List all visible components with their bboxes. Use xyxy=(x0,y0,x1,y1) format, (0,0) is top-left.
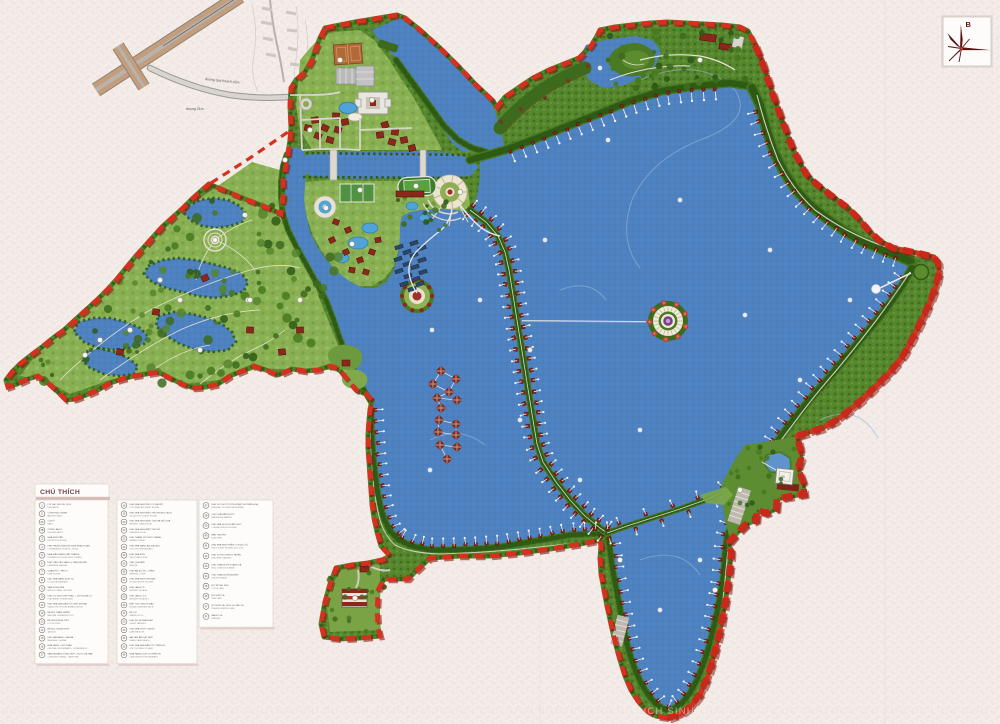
svg-text:CỔNG LÀNG 1: CỔNG LÀNG 1 xyxy=(48,528,64,531)
svg-text:GATE: GATE xyxy=(48,523,54,526)
svg-text:BỂ SỤC NGOÀI TRỜI: BỂ SỤC NGOÀI TRỜI xyxy=(48,628,70,631)
svg-text:LAKE HOUSE: LAKE HOUSE xyxy=(48,572,61,575)
svg-text:SÂN BÓNG MINI: SÂN BÓNG MINI xyxy=(48,586,65,589)
svg-text:KHU NHÀ SÀN DÂN TỘC TRÊN HỒ: KHU NHÀ SÀN DÂN TỘC TRÊN HỒ xyxy=(130,644,166,647)
svg-text:B: B xyxy=(966,20,972,29)
svg-text:POULTRY RESTAURANT: POULTRY RESTAURANT xyxy=(130,548,154,551)
svg-text:KHU NHÀ NGHỈ TRÊN CỒN (45 LÔ): KHU NHÀ NGHỈ TRÊN CỒN (45 LÔ) xyxy=(212,543,248,546)
svg-text:LOCAL RESTAURANT: LOCAL RESTAURANT xyxy=(48,581,69,584)
svg-text:WATERSIDE MARKET: WATERSIDE MARKET xyxy=(212,516,233,519)
svg-text:KHU DU LICH SINH THAI HO NUI C: KHU DU LICH SINH THAI HO NUI COC THAI NG… xyxy=(2,706,1000,717)
svg-text:BUDDHA + FLOWER SHOW AREA: BUDDHA + FLOWER SHOW AREA xyxy=(212,506,245,509)
svg-text:NHÀ ĐIỀU HÀNH (XÂY THANG): NHÀ ĐIỀU HÀNH (XÂY THANG) xyxy=(48,553,80,556)
svg-text:WADING POOL: WADING POOL xyxy=(130,614,145,617)
svg-text:KHU VƯỜN CHIM TỰ NHIÊN: KHU VƯỜN CHIM TỰ NHIÊN xyxy=(212,554,242,557)
svg-text:KHU NHÀ DỊCH VỤ ẨM THỰC: KHU NHÀ DỊCH VỤ ẨM THỰC xyxy=(212,523,243,526)
svg-text:2A: 2A xyxy=(41,521,44,524)
svg-text:LOTUS POND: LOTUS POND xyxy=(48,623,62,625)
svg-text:ANCIENT VILLAGE 2: ANCIENT VILLAGE 2 xyxy=(130,597,150,600)
svg-text:ENTRANCE: ENTRANCE xyxy=(48,506,60,509)
svg-text:BIỆT THỰ VEN HỒ ĐẢO: BIỆT THỰ VEN HỒ ĐẢO xyxy=(130,603,155,606)
svg-text:LOTUS LAKE: LOTUS LAKE xyxy=(212,587,225,590)
svg-text:BRIDGE: BRIDGE xyxy=(130,565,138,567)
svg-text:PARKING: PARKING xyxy=(212,617,221,620)
svg-text:KHU VIÊN CÂY XANH Q.TRA NGUYÊN: KHU VIÊN CÂY XANH Q.TRA NGUYÊN xyxy=(48,561,88,564)
svg-text:WILD BIRD GARDEN: WILD BIRD GARDEN xyxy=(212,557,232,560)
svg-text:KHU NHÀ NGHỈ VEN BÃO: KHU NHÀ NGHỈ VEN BÃO xyxy=(130,578,157,581)
svg-text:KHU CHĂN NUÔI ĐÀ ĐIỂU: KHU CHĂN NUÔI ĐÀ ĐIỂU xyxy=(212,574,239,577)
svg-text:VILLA STYLE GUEST HOUSE: VILLA STYLE GUEST HOUSE xyxy=(130,514,158,517)
svg-text:KHU ĐỖ XE NHÀ NGHỈ: KHU ĐỖ XE NHÀ NGHỈ xyxy=(130,619,154,622)
svg-text:2B: 2B xyxy=(41,529,44,532)
svg-text:NHÀ HÀNG + HỘI THẢO: NHÀ HÀNG + HỘI THẢO xyxy=(48,644,73,647)
svg-text:HỒ TRỒNG SEN: HỒ TRỒNG SEN xyxy=(212,584,229,587)
svg-text:QUẦN HỘI - YẾN VỊ: QUẦN HỘI - YẾN VỊ xyxy=(48,569,68,572)
svg-text:CENTRAL RESTAURANT + CONFERENC: CENTRAL RESTAURANT + CONFERENCE xyxy=(48,647,88,650)
svg-text:HỒ NUÔI CÁ, DỊCH VỤ CÂU CÁ: HỒ NUÔI CÁ, DỊCH VỤ CÂU CÁ xyxy=(212,604,245,607)
svg-text:NHÀ HÀNG DỊCH VỤ TRÊN HỒ: NHÀ HÀNG DỊCH VỤ TRÊN HỒ xyxy=(130,652,162,655)
svg-text:KHU LÀNG CỔ: KHU LÀNG CỔ xyxy=(130,586,145,589)
svg-text:KHU NHÀ NGHỈ BIỆT THỰ HỒ: KHU NHÀ NGHỈ BIỆT THỰ HỒ xyxy=(130,528,161,531)
svg-text:LAKE PAVILION: LAKE PAVILION xyxy=(130,631,145,634)
svg-text:PARKING + PIER: PARKING + PIER xyxy=(130,572,146,575)
svg-text:MASSAGE - SAUNA: MASSAGE - SAUNA xyxy=(48,639,67,642)
svg-text:WATER CITADEL: WATER CITADEL xyxy=(130,539,147,542)
svg-text:KHU VUI CHƠI TƯỢNG PHẬT VÀ TRI: KHU VUI CHƠI TƯỢNG PHẬT VÀ TRIỂN HOA xyxy=(212,503,259,506)
svg-text:BÃI ĐỖ XE: BÃI ĐỖ XE xyxy=(212,614,223,617)
svg-text:KHU NHÀ THỦY TỌA HỒ: KHU NHÀ THỦY TỌA HỒ xyxy=(130,628,155,631)
svg-text:MINI FOOTBALL GROUND: MINI FOOTBALL GROUND xyxy=(48,589,73,592)
svg-text:KHU TRUNG TÂM HỘI NGHỊ KHÁCH S: KHU TRUNG TÂM HỘI NGHỊ KHÁCH SẠN xyxy=(48,545,91,548)
svg-text:RECEPTION HOUSE: RECEPTION HOUSE xyxy=(48,540,68,542)
svg-text:FISH LAKE: FISH LAKE xyxy=(212,597,223,600)
svg-text:ISLAND LAKESIDE VILLA: ISLAND LAKESIDE VILLA xyxy=(130,606,154,609)
svg-text:WELCOME HOUSE: WELCOME HOUSE xyxy=(130,557,149,559)
svg-text:PLAY AREA + HORSE RIDE: PLAY AREA + HORSE RIDE xyxy=(48,597,74,600)
svg-text:CỔNG HÀO CHÍNH: CỔNG HÀO CHÍNH xyxy=(48,511,68,514)
svg-text:CẦU QUA BẾN: CẦU QUA BẾN xyxy=(130,561,145,564)
svg-text:SÂN ĐA NĂNG TỔNG HỢP + ĐỐT LỬA: SÂN ĐA NĂNG TỔNG HỢP + ĐỐT LỬA TRẠI xyxy=(48,652,93,655)
svg-text:KHU CHĂN NUÔI HOANG DÃ: KHU CHĂN NUÔI HOANG DÃ xyxy=(212,564,242,567)
svg-text:SMALL STILT HOUSE AREA (9 UNIT: SMALL STILT HOUSE AREA (9 UNITS) xyxy=(48,606,84,609)
svg-text:KHU MASSAGE - SAUNA: KHU MASSAGE - SAUNA xyxy=(48,636,74,639)
svg-text:LỐI VÀO KHU DU LỊCH: LỐI VÀO KHU DU LỊCH xyxy=(48,503,72,506)
svg-text:WILD LIVESTOCK FARM: WILD LIVESTOCK FARM xyxy=(212,567,235,570)
svg-text:ISLET GUEST HOUSES (45 LOTS): ISLET GUEST HOUSES (45 LOTS) xyxy=(212,547,244,549)
svg-text:OLD QUARTER GUEST HOUSE: OLD QUARTER GUEST HOUSE xyxy=(130,506,160,509)
svg-text:BOAT PIER: BOAT PIER xyxy=(212,536,223,539)
svg-text:OPERATION HOUSE (VIEW TOWER): OPERATION HOUSE (VIEW TOWER) xyxy=(48,556,83,559)
svg-text:JACUZZI: JACUZZI xyxy=(48,631,57,634)
svg-text:OSTRICH FARM: OSTRICH FARM xyxy=(212,577,227,580)
svg-text:CONFERENCE CENTER - HOTEL: CONFERENCE CENTER - HOTEL xyxy=(48,549,80,551)
svg-text:CỒN Ô: CỒN Ô xyxy=(48,520,55,523)
svg-text:KHU NHÀ ĐÓN: KHU NHÀ ĐÓN xyxy=(130,553,146,556)
svg-text:KHU VUI CHƠI THỂ THAO + GIỮ NG: KHU VUI CHƠI THỂ THAO + GIỮ NGỰA CỔ xyxy=(48,594,93,597)
svg-text:P: P xyxy=(205,614,207,618)
svg-text:KHU NHÀ NGHỈ BIỆT THỰ PHONG CÁ: KHU NHÀ NGHỈ BIỆT THỰ PHONG CÁCH xyxy=(130,511,173,514)
svg-text:MASTER GATE: MASTER GATE xyxy=(48,514,63,517)
svg-text:CUISINE SERVICE HOUSE: CUISINE SERVICE HOUSE xyxy=(212,527,238,529)
svg-text:KHU LÀNG CỔ 2: KHU LÀNG CỔ 2 xyxy=(130,594,148,597)
svg-text:GUEST PARKING: GUEST PARKING xyxy=(130,622,147,625)
svg-text:duong 21m: duong 21m xyxy=(186,107,204,111)
svg-text:BẾN THUYỀN: BẾN THUYỀN xyxy=(212,533,226,536)
svg-text:SMALL SAND BEACH: SMALL SAND BEACH xyxy=(130,639,151,642)
svg-text:LAKESIDE VILLA: LAKESIDE VILLA xyxy=(130,531,146,534)
svg-text:VILLAGE GATE 1: VILLAGE GATE 1 xyxy=(48,531,65,534)
svg-text:LAVENDER GARDEN: LAVENDER GARDEN xyxy=(48,564,68,567)
svg-text:NATURAL SWIMMING POOL: NATURAL SWIMMING POOL xyxy=(48,614,75,617)
svg-text:HỒ NUÔI CÁ: HỒ NUÔI CÁ xyxy=(212,594,226,597)
svg-text:KHU NHÀ SÀN DÂN TỘC NHỎ (9 NHÀ: KHU NHÀ SÀN DÂN TỘC NHỎ (9 NHÀ) xyxy=(48,603,88,606)
svg-text:STILT HOUSES ON LAKE: STILT HOUSES ON LAKE xyxy=(130,647,154,650)
svg-text:NHÀ ĐÓN TIẾP: NHÀ ĐÓN TIẾP xyxy=(48,536,64,539)
svg-text:ANCIENT TUBE HOUSE: ANCIENT TUBE HOUSE xyxy=(130,523,153,526)
svg-text:BỂ BƠI THIÊN NHIÊN: BỂ BƠI THIÊN NHIÊN xyxy=(48,611,70,614)
svg-text:KHU BÃI ĐỖ XE + THỀM: KHU BÃI ĐỖ XE + THỀM xyxy=(130,569,155,572)
svg-text:KHU THÀNH TÍN THỦY THÀNH: KHU THÀNH TÍN THỦY THÀNH xyxy=(130,536,162,539)
svg-text:CHÚ THÍCH: CHÚ THÍCH xyxy=(40,487,80,496)
svg-text:BỂ LỘI: BỂ LỘI xyxy=(130,611,137,614)
svg-text:BỂ SEN NGOÀI TRỜI: BỂ SEN NGOÀI TRỜI xyxy=(48,619,70,622)
svg-text:CÁC NHÀ HÀNG DỊCH VỤ: CÁC NHÀ HÀNG DỊCH VỤ xyxy=(48,578,75,581)
svg-text:BÃI TẮM BÃI CÁT NHỎ: BÃI TẮM BÃI CÁT NHỎ xyxy=(130,636,154,639)
svg-text:FISHING SERVICE LAKE: FISHING SERVICE LAKE xyxy=(212,607,236,610)
svg-text:COMMUNITY AREA + CAMP FIRE: COMMUNITY AREA + CAMP FIRE xyxy=(48,655,80,658)
svg-text:KHU NHÀ HÀNG ĂN GIA CẦU: KHU NHÀ HÀNG ĂN GIA CẦU xyxy=(130,545,160,548)
svg-text:CHỢ QUÊ BẾN NƯỚC: CHỢ QUÊ BẾN NƯỚC xyxy=(212,513,235,516)
svg-text:KHU NHÀ NGHỈ PHỐ CỔ HÀ NỘI: KHU NHÀ NGHỈ PHỐ CỔ HÀ NỘI xyxy=(130,503,164,506)
svg-text:ANCIENT VILLAGE: ANCIENT VILLAGE xyxy=(130,589,148,592)
svg-text:STORM SHORE HOUSES: STORM SHORE HOUSES xyxy=(130,582,155,584)
svg-text:LAKE SERVICE RESTAURANT: LAKE SERVICE RESTAURANT xyxy=(130,655,159,658)
svg-text:KHU NHÀ NGHỈ KIỂU ỐNG HÀ NỘI X: KHU NHÀ NGHỈ KIỂU ỐNG HÀ NỘI XƯA xyxy=(130,520,171,523)
